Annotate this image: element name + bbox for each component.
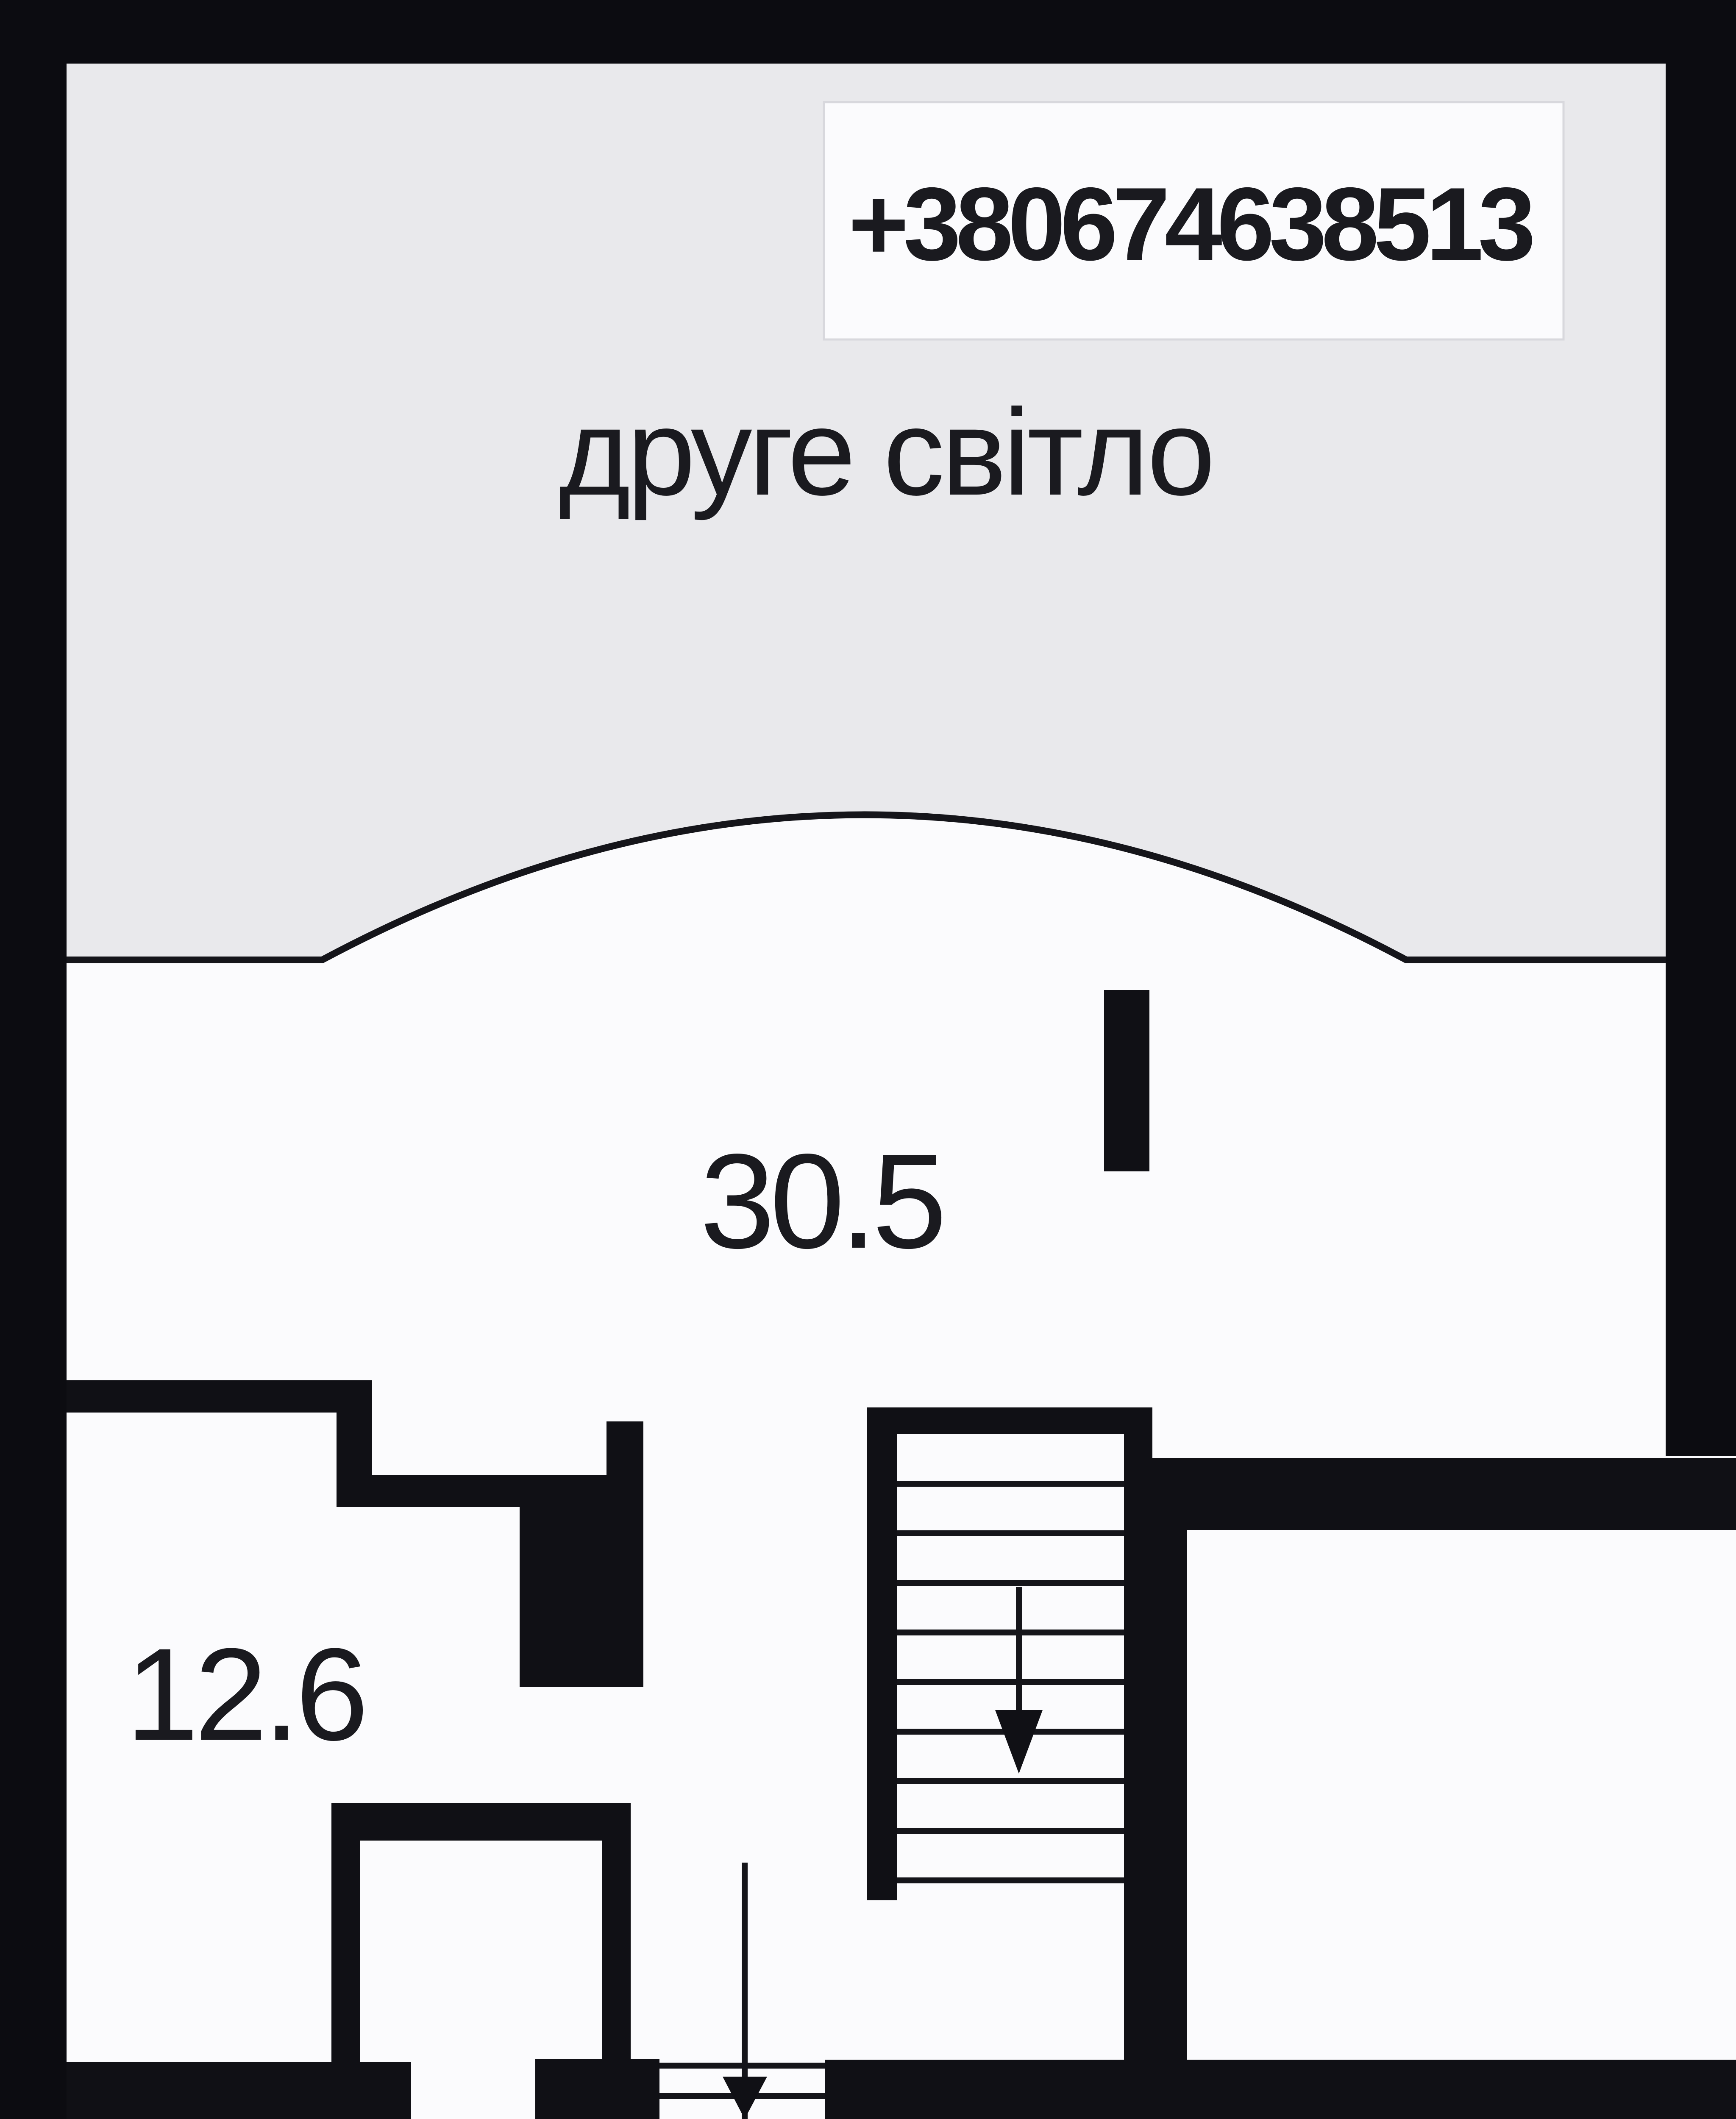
svg-text:30.5: 30.5 [700, 1126, 942, 1276]
svg-text:12.6: 12.6 [125, 1621, 364, 1768]
svg-text:+380674638513: +380674638513 [848, 166, 1532, 282]
svg-text:друге світло: друге світло [559, 384, 1212, 521]
